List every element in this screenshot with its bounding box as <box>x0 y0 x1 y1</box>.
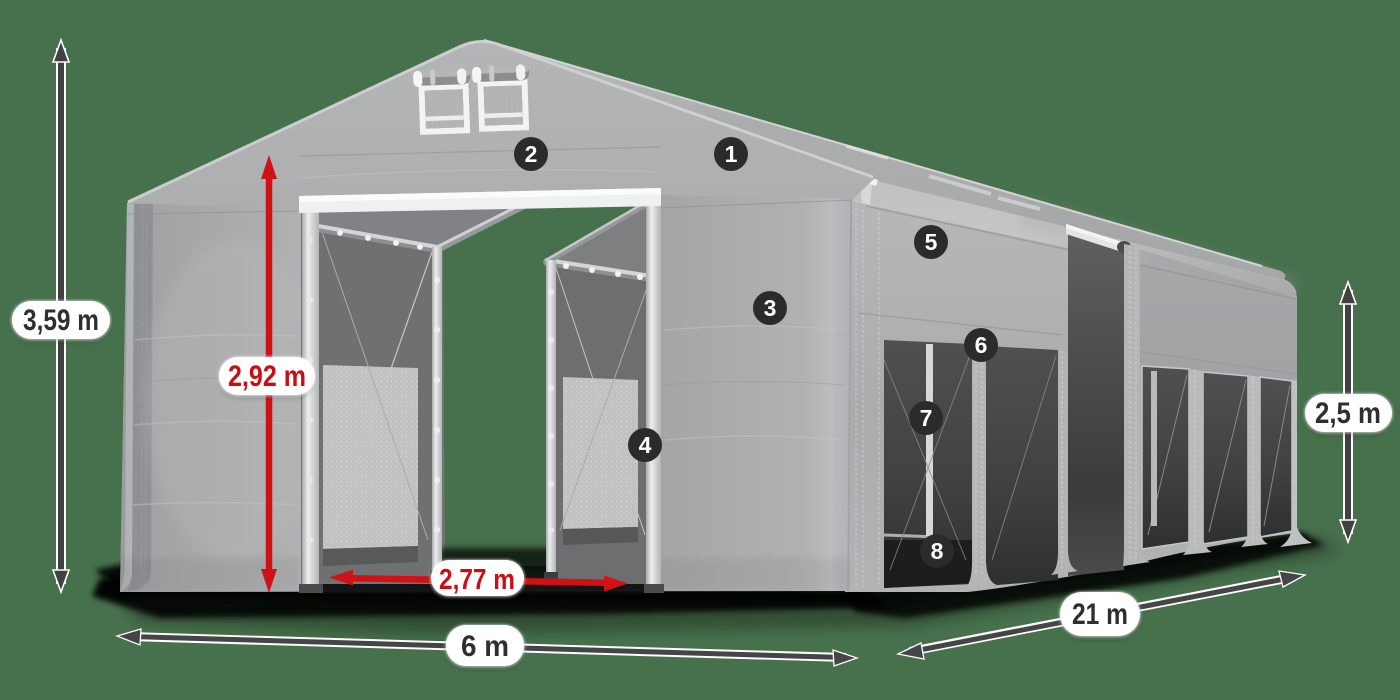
svg-text:3: 3 <box>764 295 777 321</box>
svg-text:6: 6 <box>975 332 988 358</box>
svg-text:3,59 m: 3,59 m <box>23 304 99 337</box>
svg-text:2,92 m: 2,92 m <box>228 360 306 393</box>
svg-text:6 m: 6 m <box>461 630 509 663</box>
svg-text:2: 2 <box>525 141 538 167</box>
svg-text:2,77 m: 2,77 m <box>439 564 515 596</box>
svg-text:8: 8 <box>931 538 944 564</box>
svg-text:2,5 m: 2,5 m <box>1315 397 1381 430</box>
svg-text:4: 4 <box>639 432 652 458</box>
svg-text:5: 5 <box>925 229 938 255</box>
svg-text:21 m: 21 m <box>1072 598 1128 631</box>
svg-text:1: 1 <box>725 141 738 167</box>
svg-text:7: 7 <box>920 405 933 431</box>
